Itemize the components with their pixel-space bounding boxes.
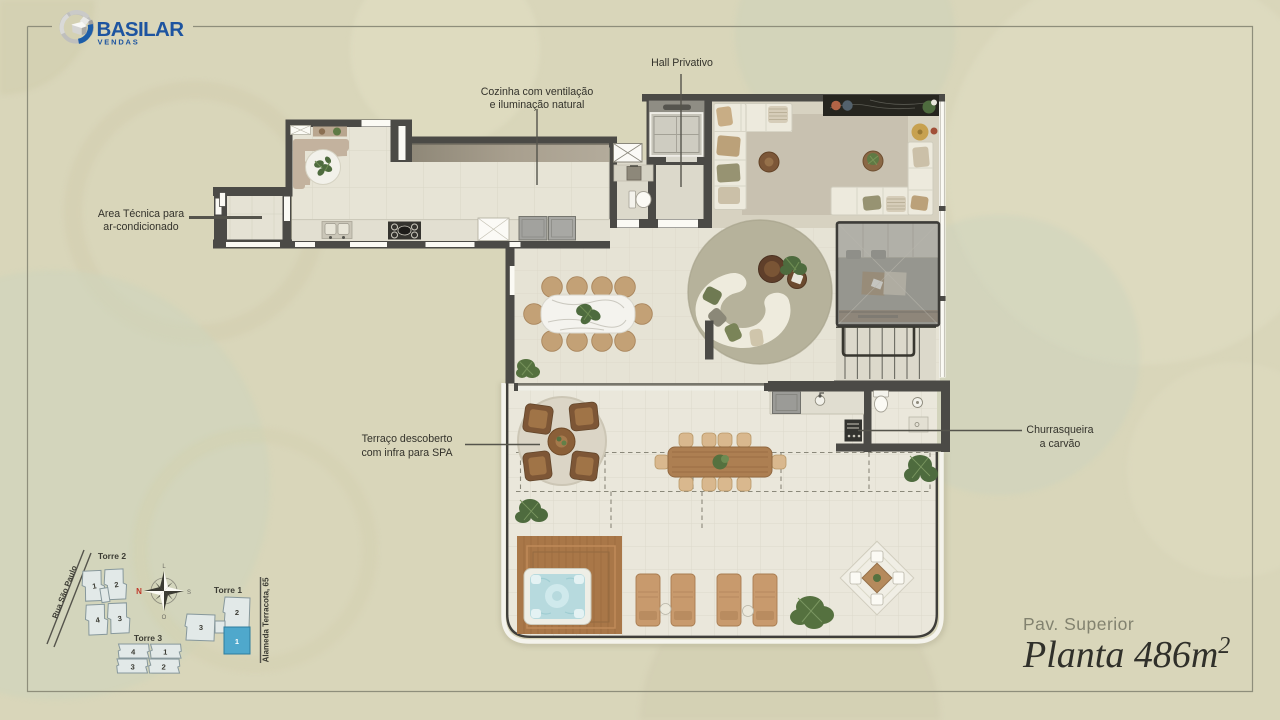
svg-text:a carvão: a carvão [1040, 438, 1081, 450]
svg-text:ar-condicionado: ar-condicionado [103, 221, 178, 233]
svg-text:Torre 3: Torre 3 [134, 633, 162, 643]
svg-text:Torre 1: Torre 1 [214, 585, 242, 595]
svg-text:Churrasqueira: Churrasqueira [1026, 424, 1093, 436]
svg-text:com infra para SPA: com infra para SPA [361, 447, 453, 459]
svg-text:3: 3 [130, 662, 134, 671]
svg-text:Hall Privativo: Hall Privativo [651, 57, 713, 69]
svg-text:Terraço descoberto: Terraço descoberto [362, 433, 453, 445]
svg-text:3: 3 [199, 623, 203, 632]
svg-text:S: S [187, 590, 191, 596]
svg-text:1: 1 [163, 648, 167, 657]
svg-text:2: 2 [235, 608, 239, 617]
svg-text:Area Técnica para: Area Técnica para [98, 208, 184, 220]
svg-text:2: 2 [161, 662, 165, 671]
svg-text:N: N [136, 587, 142, 596]
svg-text:Alameda Terracota, 65: Alameda Terracota, 65 [262, 577, 271, 662]
svg-text:Cozinha com ventilação: Cozinha com ventilação [481, 86, 594, 98]
svg-text:Torre 2: Torre 2 [98, 551, 126, 561]
svg-text:O: O [162, 615, 167, 621]
svg-text:1: 1 [235, 637, 239, 646]
svg-text:Pav. Superior: Pav. Superior [1023, 614, 1134, 634]
svg-text:VENDAS: VENDAS [98, 38, 140, 47]
svg-text:Planta 486m2: Planta 486m2 [1022, 633, 1230, 676]
svg-text:e iluminação natural: e iluminação natural [490, 99, 585, 111]
